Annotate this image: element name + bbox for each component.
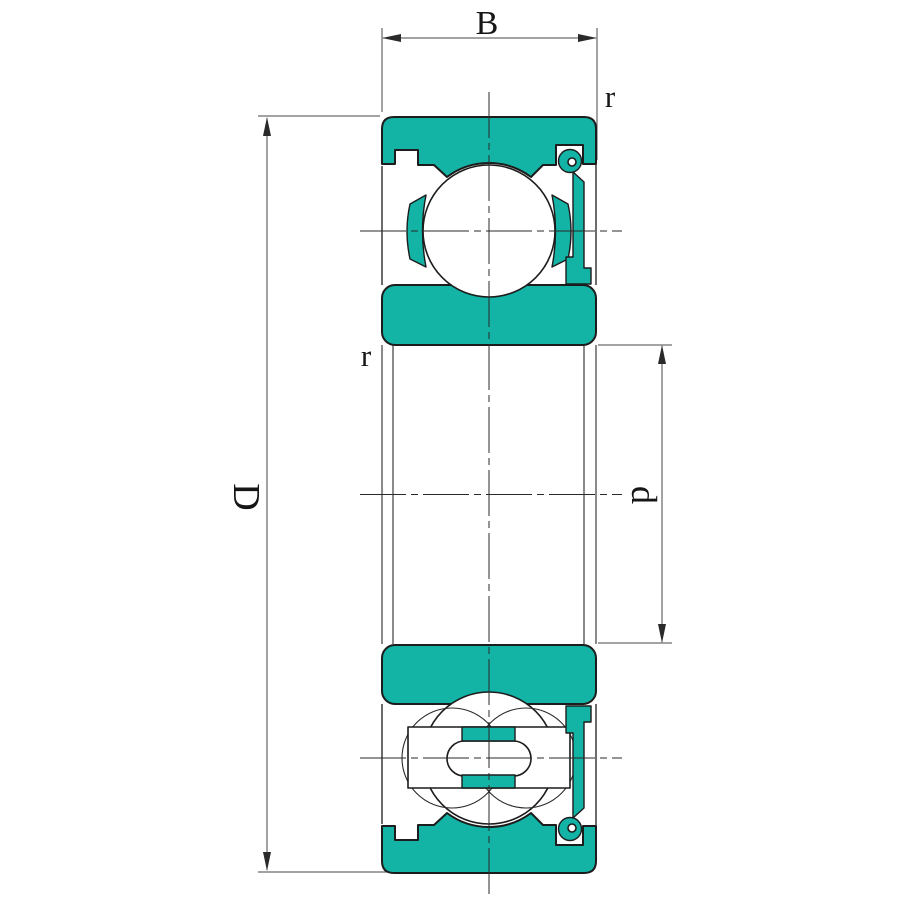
label-chamfer-r-top: r: [605, 79, 616, 114]
arrow-d-bottom: [658, 624, 666, 643]
arrow-D-bottom: [263, 852, 271, 871]
shield-top-curl-center: [568, 158, 576, 166]
arrow-D-top: [263, 117, 271, 136]
arrow-B-right: [578, 34, 597, 42]
bearing-drawing-canvas: B r r D d: [0, 0, 900, 900]
label-bore-diameter-d: d: [624, 486, 664, 504]
shield-bottom-curl-center: [568, 824, 576, 832]
bearing-diagram: B r r D d: [0, 0, 900, 900]
label-chamfer-r-inner: r: [361, 338, 372, 373]
label-outer-diameter-D: D: [225, 483, 267, 510]
arrow-B-left: [382, 34, 401, 42]
arrow-d-top: [658, 345, 666, 364]
label-width-B: B: [476, 5, 499, 42]
